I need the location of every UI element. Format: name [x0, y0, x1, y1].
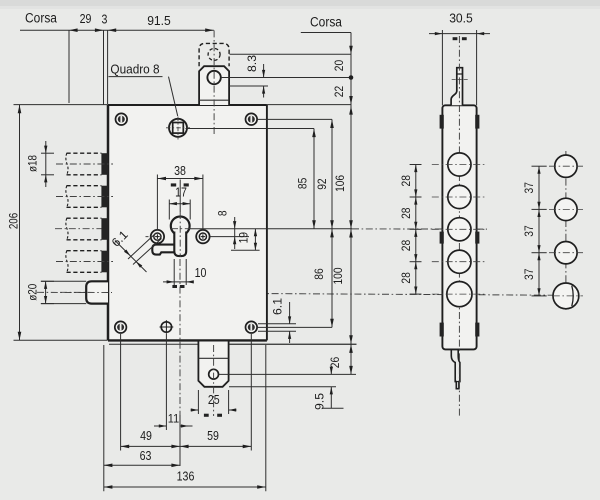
svg-text:22: 22 — [332, 86, 346, 98]
svg-text:ø18: ø18 — [26, 155, 40, 172]
svg-text:Corsa: Corsa — [25, 11, 57, 26]
svg-text:20: 20 — [332, 60, 346, 72]
svg-text:11: 11 — [168, 412, 180, 426]
svg-text:59: 59 — [207, 429, 219, 443]
svg-text:10: 10 — [195, 266, 207, 280]
svg-text:106: 106 — [333, 175, 347, 192]
svg-text:3: 3 — [102, 13, 108, 27]
svg-text:30.5: 30.5 — [449, 12, 473, 26]
svg-text:38: 38 — [174, 164, 186, 178]
svg-text:206: 206 — [9, 213, 21, 229]
svg-text:25: 25 — [208, 393, 220, 407]
svg-text:19: 19 — [237, 232, 251, 244]
svg-text:28: 28 — [399, 272, 413, 284]
svg-text:Corsa: Corsa — [310, 15, 342, 30]
svg-text:92: 92 — [315, 178, 329, 190]
svg-text:91.5: 91.5 — [147, 14, 171, 28]
svg-text:63: 63 — [140, 449, 152, 463]
svg-text:17: 17 — [175, 186, 187, 200]
svg-text:29: 29 — [80, 12, 92, 26]
svg-text:8: 8 — [216, 210, 230, 216]
svg-text:49: 49 — [140, 429, 152, 443]
svg-text:9.5: 9.5 — [313, 393, 327, 410]
svg-text:100: 100 — [331, 267, 345, 284]
svg-text:37: 37 — [522, 268, 536, 280]
svg-text:ø20: ø20 — [26, 284, 40, 301]
svg-text:6.1: 6.1 — [271, 298, 285, 315]
svg-text:86: 86 — [312, 268, 326, 280]
svg-text:136: 136 — [177, 470, 195, 484]
svg-text:Quadro 8: Quadro 8 — [110, 62, 159, 77]
svg-text:28: 28 — [399, 175, 413, 187]
svg-text:28: 28 — [399, 240, 413, 252]
svg-text:37: 37 — [522, 225, 536, 237]
svg-text:8.3: 8.3 — [245, 55, 259, 72]
svg-text:28: 28 — [399, 207, 413, 219]
svg-text:85: 85 — [296, 177, 310, 189]
svg-text:26: 26 — [328, 357, 342, 369]
svg-text:37: 37 — [522, 182, 536, 194]
